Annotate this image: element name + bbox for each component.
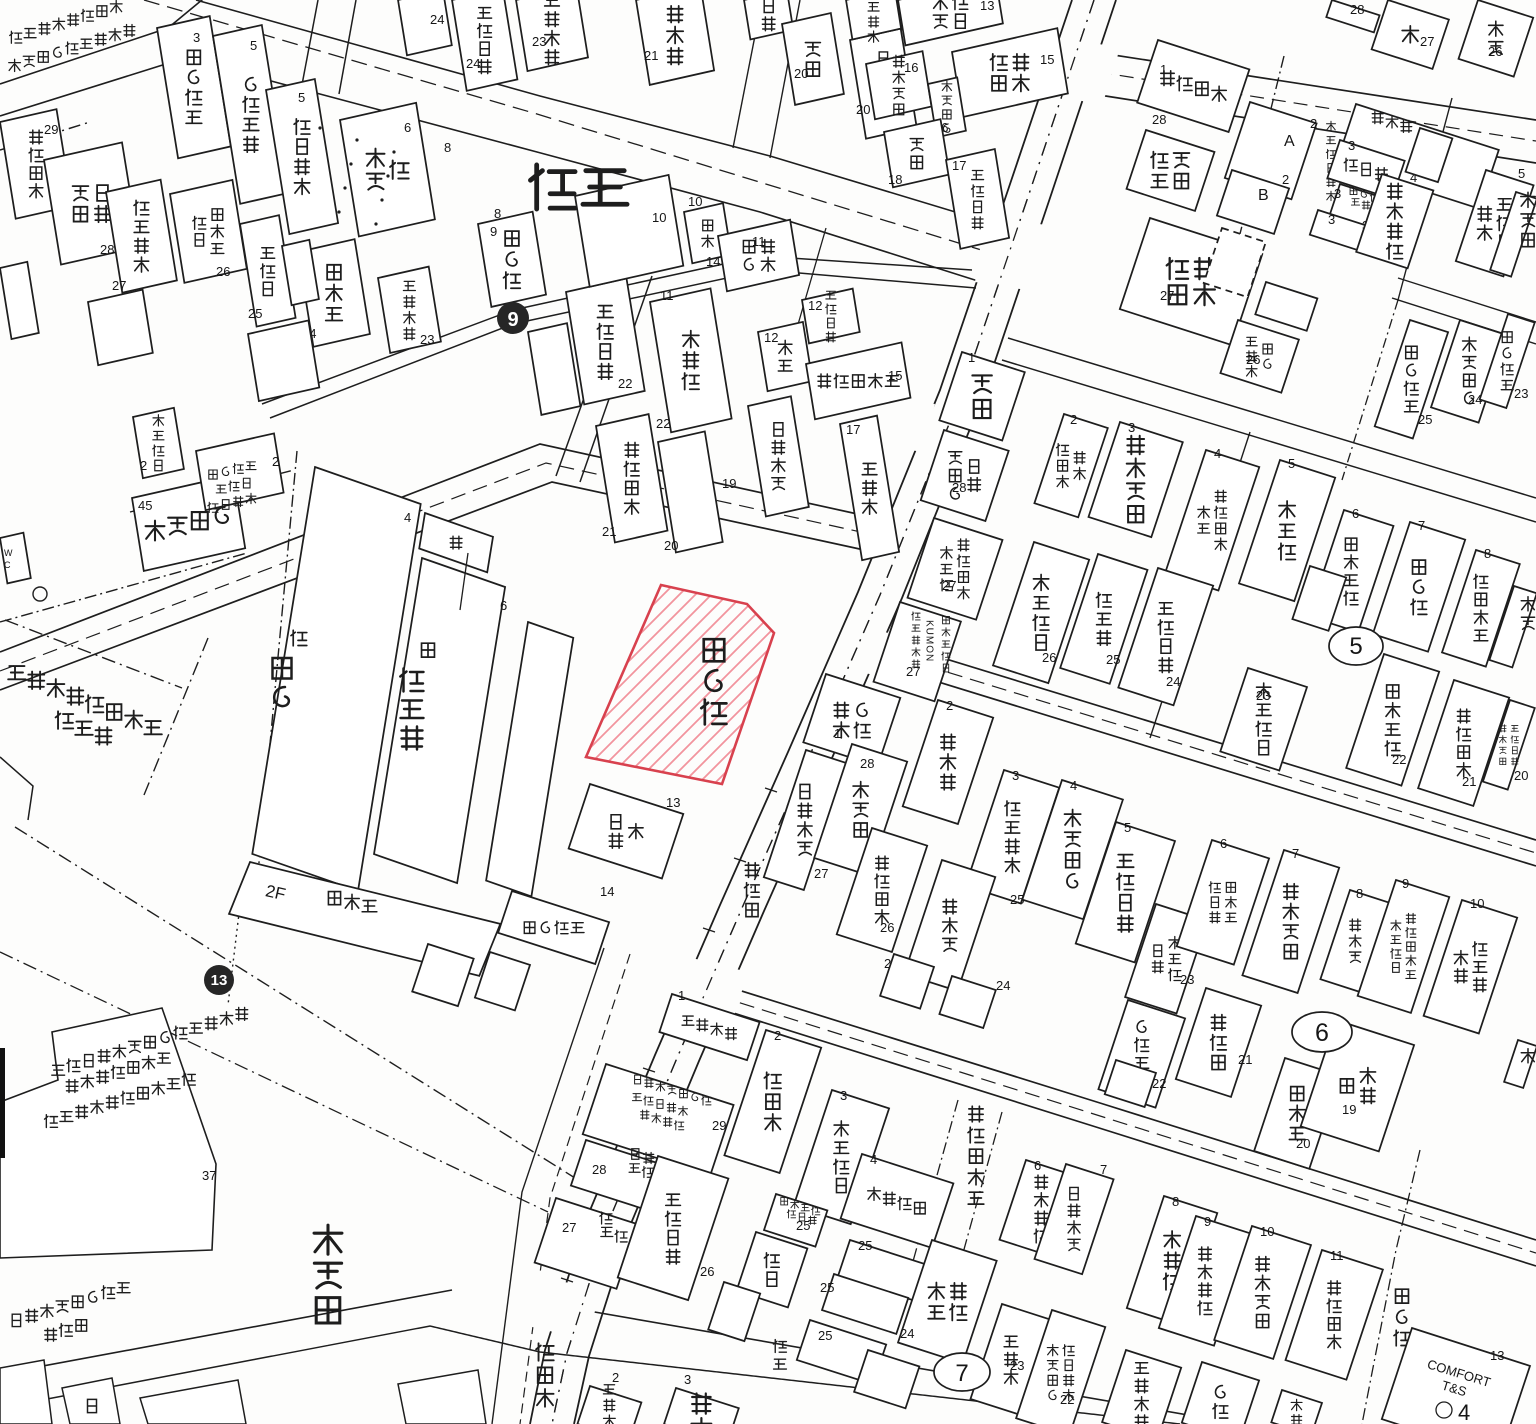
svg-text:2: 2 <box>612 1370 619 1385</box>
svg-text:25: 25 <box>1010 892 1024 907</box>
svg-text:21: 21 <box>644 48 658 63</box>
svg-text:20: 20 <box>856 102 870 117</box>
svg-text:25: 25 <box>248 306 262 321</box>
svg-text:9: 9 <box>1204 1214 1211 1229</box>
svg-text:2: 2 <box>774 1028 781 1043</box>
svg-text:27: 27 <box>906 664 920 679</box>
svg-text:23: 23 <box>1010 1358 1024 1373</box>
svg-text:20: 20 <box>794 66 808 81</box>
svg-text:C: C <box>4 560 11 570</box>
svg-text:27: 27 <box>814 866 828 881</box>
svg-text:5: 5 <box>1124 820 1131 835</box>
svg-text:10: 10 <box>688 194 702 209</box>
svg-text:11: 11 <box>660 288 674 303</box>
svg-text:22: 22 <box>1060 1392 1074 1407</box>
svg-text:8: 8 <box>444 140 451 155</box>
svg-text:11: 11 <box>1330 1248 1344 1263</box>
svg-text:5: 5 <box>250 38 257 53</box>
svg-text:7: 7 <box>1292 846 1299 861</box>
svg-text:16: 16 <box>904 60 918 75</box>
svg-text:2: 2 <box>1070 412 1077 427</box>
svg-text:A: A <box>1284 133 1295 150</box>
svg-text:25: 25 <box>818 1328 832 1343</box>
svg-text:22: 22 <box>1392 752 1406 767</box>
svg-text:20: 20 <box>1514 768 1528 783</box>
svg-text:3: 3 <box>1348 138 1355 153</box>
svg-text:23: 23 <box>532 34 546 49</box>
svg-text:4: 4 <box>870 1152 877 1167</box>
svg-text:26: 26 <box>1246 352 1260 367</box>
svg-text:1: 1 <box>834 726 841 741</box>
svg-text:15: 15 <box>1040 52 1054 67</box>
svg-text:7: 7 <box>1100 1162 1107 1177</box>
svg-text:37: 37 <box>202 1168 216 1183</box>
svg-text:28: 28 <box>860 756 874 771</box>
svg-text:27: 27 <box>942 578 956 593</box>
svg-text:4: 4 <box>404 510 411 525</box>
svg-text:22: 22 <box>618 376 632 391</box>
svg-text:24: 24 <box>430 12 444 27</box>
svg-text:13: 13 <box>666 795 680 810</box>
svg-text:26: 26 <box>216 264 230 279</box>
svg-text:5: 5 <box>1288 456 1295 471</box>
svg-text:29: 29 <box>712 1118 726 1133</box>
svg-text:8: 8 <box>1172 1194 1179 1209</box>
svg-text:7: 7 <box>955 1360 968 1387</box>
svg-text:24: 24 <box>1166 674 1180 689</box>
svg-text:17: 17 <box>846 422 860 437</box>
svg-text:8: 8 <box>1484 546 1491 561</box>
svg-text:6: 6 <box>404 120 411 135</box>
svg-text:6: 6 <box>1315 1019 1329 1047</box>
svg-text:8: 8 <box>1356 886 1363 901</box>
svg-text:9: 9 <box>490 224 497 239</box>
svg-text:5: 5 <box>1349 633 1362 660</box>
svg-text:23: 23 <box>1514 386 1528 401</box>
svg-text:20: 20 <box>664 538 678 553</box>
svg-text:2: 2 <box>272 454 279 469</box>
svg-text:3: 3 <box>684 1372 691 1387</box>
svg-text:4: 4 <box>1070 778 1077 793</box>
svg-text:23: 23 <box>1256 688 1270 703</box>
svg-text:27: 27 <box>1160 288 1174 303</box>
svg-text:3: 3 <box>840 1088 847 1103</box>
svg-text:24: 24 <box>900 1326 914 1341</box>
svg-text:B: B <box>1258 187 1269 204</box>
svg-text:24: 24 <box>466 56 480 71</box>
svg-text:22: 22 <box>656 416 670 431</box>
svg-text:23: 23 <box>420 332 434 347</box>
svg-text:25: 25 <box>1106 652 1120 667</box>
svg-text:10: 10 <box>1470 896 1484 911</box>
svg-text:5: 5 <box>298 90 305 105</box>
svg-text:9: 9 <box>1402 876 1409 891</box>
svg-text:6: 6 <box>1034 1158 1041 1173</box>
svg-text:KUMON: KUMON <box>924 620 935 662</box>
svg-text:27: 27 <box>1420 34 1434 49</box>
svg-text:17: 17 <box>952 158 966 173</box>
svg-text:25: 25 <box>858 1238 872 1253</box>
svg-text:29: 29 <box>44 122 58 137</box>
svg-text:13: 13 <box>980 0 994 13</box>
svg-text:18: 18 <box>888 172 902 187</box>
svg-text:12: 12 <box>764 330 778 345</box>
svg-text:14: 14 <box>706 254 720 269</box>
svg-text:21: 21 <box>1238 1052 1252 1067</box>
svg-text:2: 2 <box>946 698 953 713</box>
svg-text:3: 3 <box>1128 420 1135 435</box>
svg-text:26: 26 <box>1042 650 1056 665</box>
svg-text:27: 27 <box>562 1220 576 1235</box>
svg-text:26: 26 <box>700 1264 714 1279</box>
svg-text:2: 2 <box>140 458 147 473</box>
svg-text:21: 21 <box>1462 774 1476 789</box>
svg-text:8: 8 <box>494 206 501 221</box>
svg-text:3: 3 <box>1328 212 1335 227</box>
svg-text:27: 27 <box>112 278 126 293</box>
svg-text:45: 45 <box>138 498 152 513</box>
svg-text:4: 4 <box>1458 1400 1470 1424</box>
svg-text:2: 2 <box>1310 116 1317 131</box>
svg-text:W: W <box>4 548 13 558</box>
svg-text:1: 1 <box>968 350 975 365</box>
svg-text:6: 6 <box>500 598 507 613</box>
svg-text:10: 10 <box>1260 1224 1274 1239</box>
svg-text:7: 7 <box>1418 518 1425 533</box>
svg-text:25: 25 <box>820 1280 834 1295</box>
svg-text:28: 28 <box>1350 2 1364 17</box>
svg-text:6: 6 <box>1220 836 1227 851</box>
svg-text:12: 12 <box>808 298 822 313</box>
svg-text:28: 28 <box>592 1162 606 1177</box>
svg-text:11: 11 <box>752 234 766 249</box>
svg-text:4: 4 <box>1214 446 1221 461</box>
svg-text:3: 3 <box>193 30 200 45</box>
svg-text:10: 10 <box>652 210 666 225</box>
svg-text:13: 13 <box>211 972 228 989</box>
svg-text:21: 21 <box>602 524 616 539</box>
svg-text:14: 14 <box>600 884 614 899</box>
svg-text:28: 28 <box>1152 112 1166 127</box>
svg-text:9: 9 <box>507 309 518 331</box>
svg-text:28: 28 <box>100 242 114 257</box>
svg-text:1: 1 <box>1160 62 1167 77</box>
svg-text:3: 3 <box>1012 768 1019 783</box>
svg-text:26: 26 <box>880 920 894 935</box>
svg-text:26: 26 <box>1488 44 1502 59</box>
svg-text:20: 20 <box>1296 1136 1310 1151</box>
svg-text:5: 5 <box>1518 166 1525 181</box>
svg-text:1: 1 <box>678 988 685 1003</box>
svg-text:25: 25 <box>1418 412 1432 427</box>
svg-text:23: 23 <box>1180 972 1194 987</box>
svg-text:13: 13 <box>1490 1348 1504 1363</box>
svg-text:19: 19 <box>722 476 736 491</box>
svg-text:6: 6 <box>1352 506 1359 521</box>
svg-text:2: 2 <box>1282 172 1289 187</box>
svg-text:15: 15 <box>888 368 902 383</box>
svg-text:3: 3 <box>1334 186 1341 201</box>
svg-text:19: 19 <box>1342 1102 1356 1117</box>
svg-text:24: 24 <box>996 978 1010 993</box>
svg-text:28: 28 <box>952 480 966 495</box>
